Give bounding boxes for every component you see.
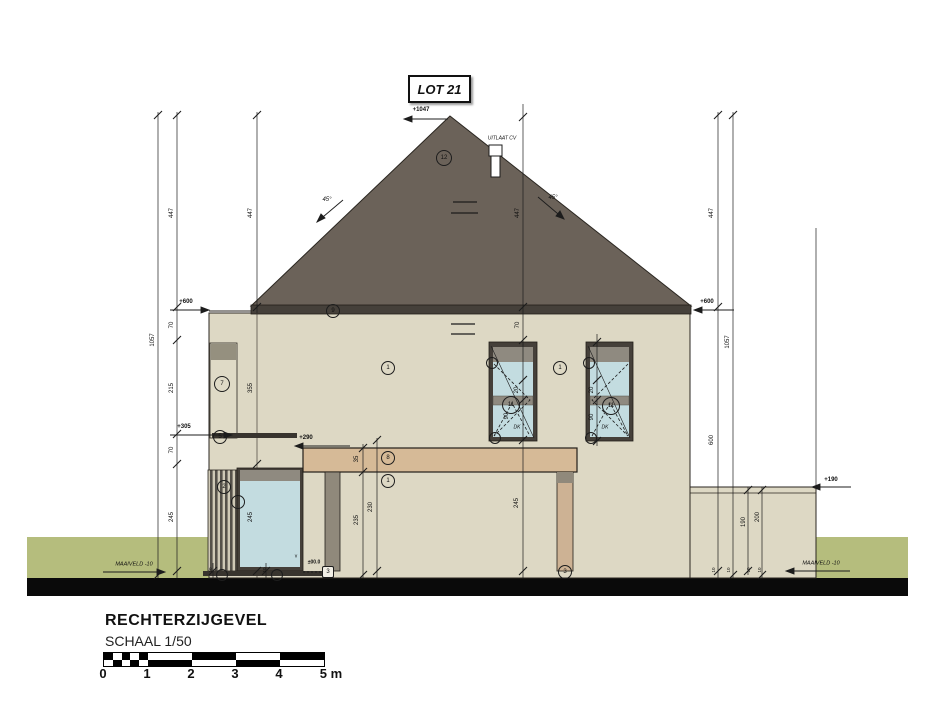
ref-bubble-12: 12 [436,150,452,166]
eaves-fascia [251,305,691,314]
dimension-label: 10 [758,567,763,572]
ref-bubble [231,495,245,509]
dimension-label: 447 [248,208,254,218]
level-label: +600 [700,299,714,305]
scale-tick-label: 5 m [320,666,342,681]
ref-bubble-11: 11 [602,397,620,415]
ref-bubble [583,357,595,369]
dimension-label: 447 [709,208,715,218]
dimension-label: 70 [169,447,175,454]
dimension-label: 447 [515,208,521,218]
dimension-label: 10 [209,567,214,572]
scale-tick-label: 2 [187,666,194,681]
dimension-label: 90 [589,414,595,421]
scale-bar-labels: 012345 m [0,666,930,686]
drawing-canvas [0,0,930,704]
dimension-label: 245 [169,512,175,522]
ref-bubble-1: 1 [553,361,567,375]
dimension-label: 70 [515,322,521,329]
dimension-label: 20 [514,387,520,394]
dimension-label: 447 [169,208,175,218]
ref-bubble-9: 9 [326,304,340,318]
ref-bubble-2: 2 [217,480,231,494]
annotation-text: MAAIVELD -10 [802,561,839,567]
ref-bubble-1: 1 [381,361,395,375]
ref-bubble-1: 1 [381,474,395,488]
ground-bar [27,578,908,596]
annotation-text: 45° [322,197,331,203]
ref-bubble [489,432,501,444]
dimension-label: 190 [741,517,747,527]
dimension-label: 1057 [725,335,731,348]
dimension-label: 10 [727,567,732,572]
dimension-label: 70 [169,322,175,329]
ref-bubble-8: 8 [381,451,395,465]
roof [251,116,691,306]
dimension-label: 10 [263,567,268,572]
level-label: +600 [179,299,193,305]
level-label: ±00.0 [308,561,320,566]
ref-bubble [486,357,498,369]
dimension-label: 355 [248,383,254,393]
dimension-label: 600 [709,435,715,445]
dimension-label: 230 [368,502,374,512]
dimension-label: 245 [514,498,520,508]
scale-tick-label: 4 [275,666,282,681]
ref-bubble [216,569,228,581]
ref-bubble-7: 7 [214,376,230,392]
dimension-label: 245 [248,512,254,522]
level-label: +290 [299,435,313,441]
drawing-title: RECHTERZIJGEVEL [105,612,267,630]
ref-bubble-11: 11 [502,396,520,414]
vent-pipe [489,145,502,177]
lot-label: LOT 21 [408,75,471,103]
drawing-scale: SCHAAL 1/50 [105,633,192,649]
elevation-drawing-page: LOT 21 105744770215702454473552454477020… [0,0,930,704]
scale-bar [103,652,325,667]
dimension-label: 1057 [150,333,156,346]
annotation-text: v [295,555,298,560]
ground-floor-window [237,468,303,571]
dimension-label: 35 [354,456,360,463]
ref-bubble-3: 3 [558,565,572,579]
level-label: +305 [177,424,191,430]
ref-bubble-3: 3 [322,566,334,578]
dimension-label: 200 [755,512,761,522]
dimension-label: 20 [589,387,595,394]
ref-bubble [271,569,283,581]
level-label: +190 [824,477,838,483]
dimension-label: 10 [747,567,752,572]
annotation-text: MAAIVELD -10 [115,562,152,568]
grass-right [816,537,908,578]
dimension-label: 10 [712,567,717,572]
garden-wall [690,487,816,578]
ref-bubble-5: 5 [213,430,227,444]
annotation-text: DK [602,426,609,431]
scale-tick-label: 0 [99,666,106,681]
ref-bubble [585,432,597,444]
scale-tick-label: 3 [231,666,238,681]
annotation-text: UITLAAT CV [488,137,517,142]
dimension-label: 235 [354,515,360,525]
dimension-label: 215 [169,383,175,393]
annotation-text: 45° [548,195,557,201]
level-label: +1047 [413,107,430,113]
scale-tick-label: 1 [143,666,150,681]
annotation-text: DK [514,426,521,431]
